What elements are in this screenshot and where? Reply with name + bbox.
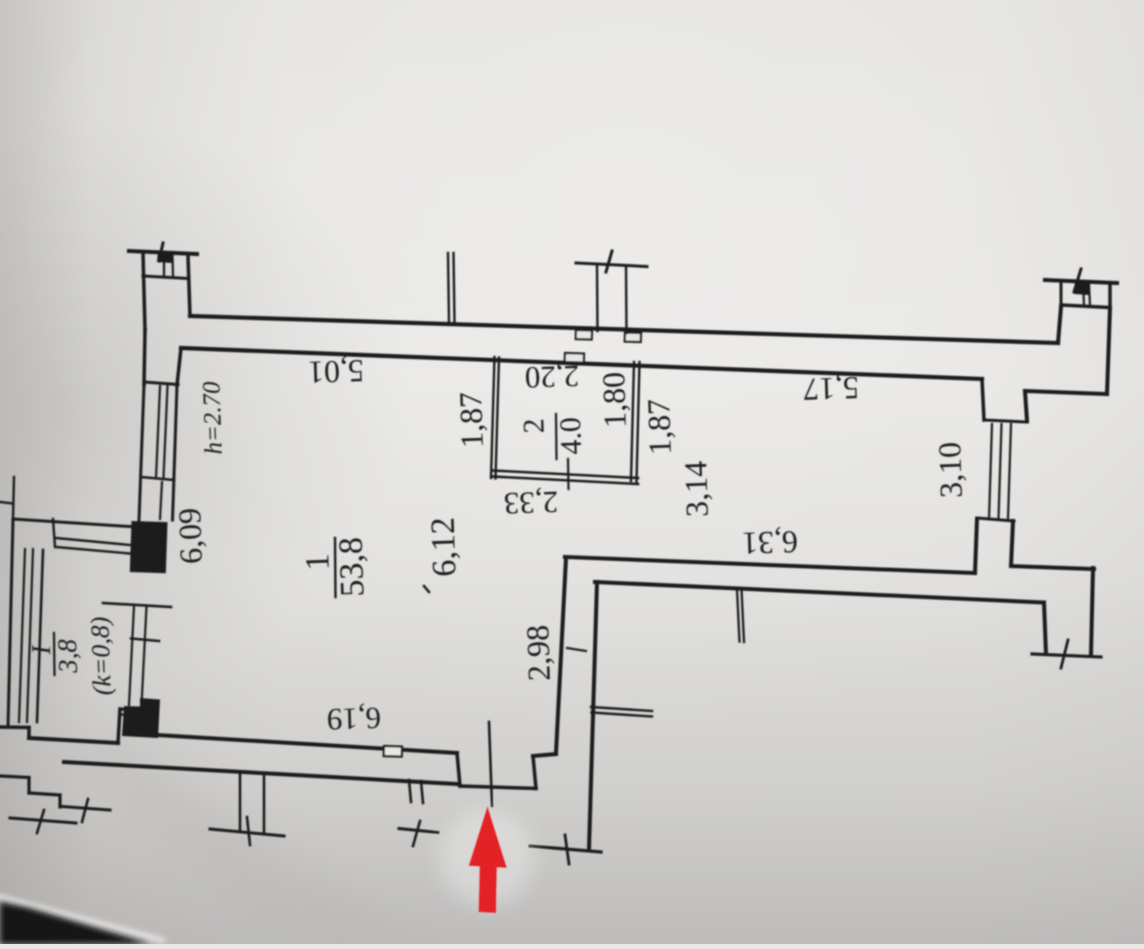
svg-text:53,8: 53,8: [333, 537, 372, 598]
svg-text:5,01: 5,01: [307, 353, 364, 391]
svg-text:3,10: 3,10: [931, 441, 969, 498]
svg-text:2,98: 2,98: [519, 624, 557, 681]
svg-text:2: 2: [517, 418, 550, 434]
svg-text:2,20: 2,20: [524, 359, 579, 396]
svg-text:6,19: 6,19: [326, 701, 381, 738]
svg-text:(k=0,8): (k=0,8): [85, 616, 117, 696]
svg-text:2,33: 2,33: [503, 485, 558, 522]
svg-text:6,12: 6,12: [425, 517, 464, 578]
svg-text:4.0: 4.0: [554, 417, 588, 456]
svg-text:6,31: 6,31: [741, 524, 798, 562]
svg-text:h=2.70: h=2.70: [198, 381, 227, 455]
svg-text:3,14: 3,14: [677, 460, 715, 517]
svg-text:1: 1: [299, 553, 337, 571]
svg-text:5,17: 5,17: [802, 370, 859, 408]
svg-text:6,09: 6,09: [171, 507, 209, 564]
svg-text:1,80: 1,80: [595, 371, 633, 428]
svg-text:1,87: 1,87: [640, 398, 678, 455]
svg-text:3,8: 3,8: [52, 638, 83, 674]
svg-text:1,87: 1,87: [452, 391, 490, 448]
